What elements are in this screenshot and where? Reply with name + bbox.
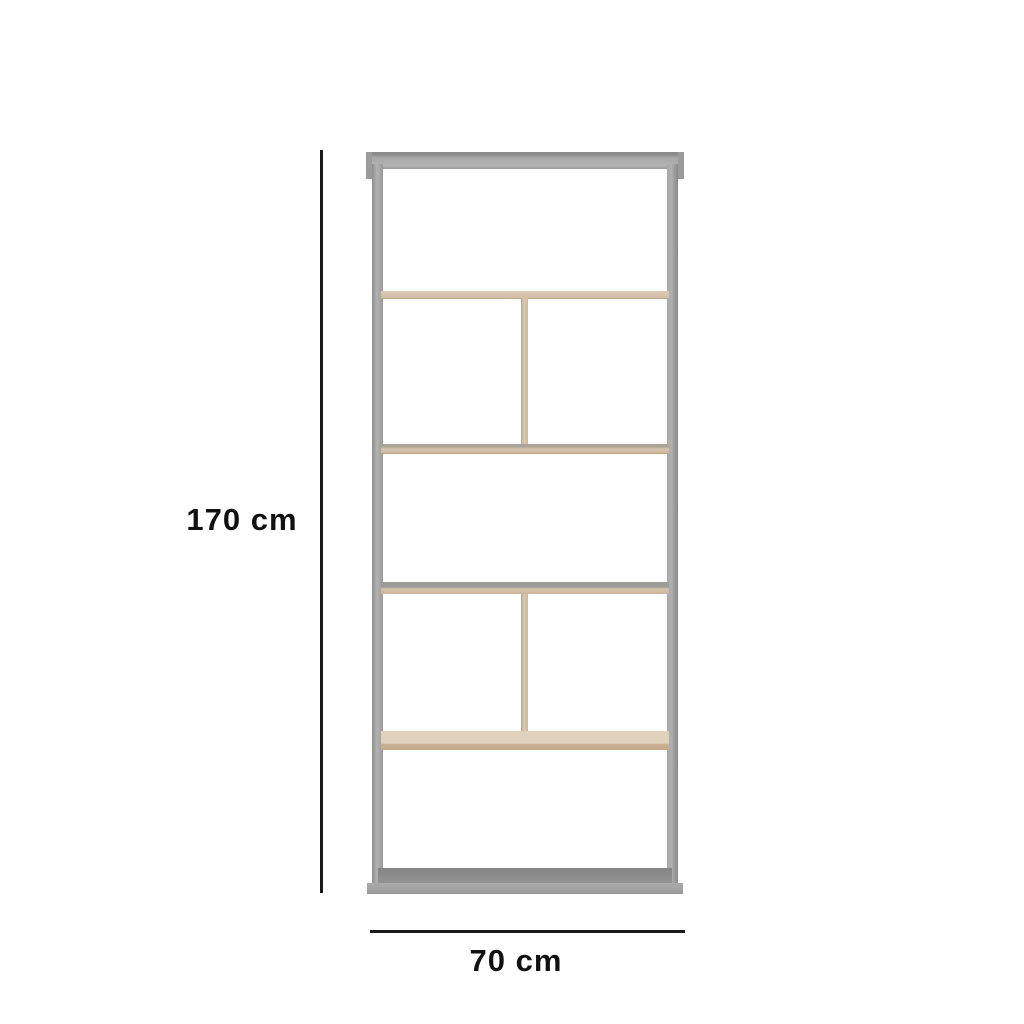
left-post: [372, 164, 383, 888]
top-panel: [366, 152, 684, 169]
base-panel-front: [367, 883, 683, 894]
product-dimension-diagram: 170 cm 70 cm: [0, 0, 1024, 1024]
shelving-unit: [372, 152, 678, 894]
base-panel-top: [378, 868, 672, 883]
divider-1: [521, 298, 528, 444]
shelf-3: [381, 582, 669, 594]
width-dimension-line: [370, 930, 685, 933]
divider-2: [521, 594, 528, 731]
shelf-4: [381, 731, 669, 750]
height-dimension-label: 170 cm: [142, 502, 342, 538]
shelf-2: [381, 444, 669, 454]
top-panel-right-cap: [678, 152, 684, 179]
right-post: [667, 164, 678, 888]
width-dimension-label: 70 cm: [416, 943, 616, 979]
